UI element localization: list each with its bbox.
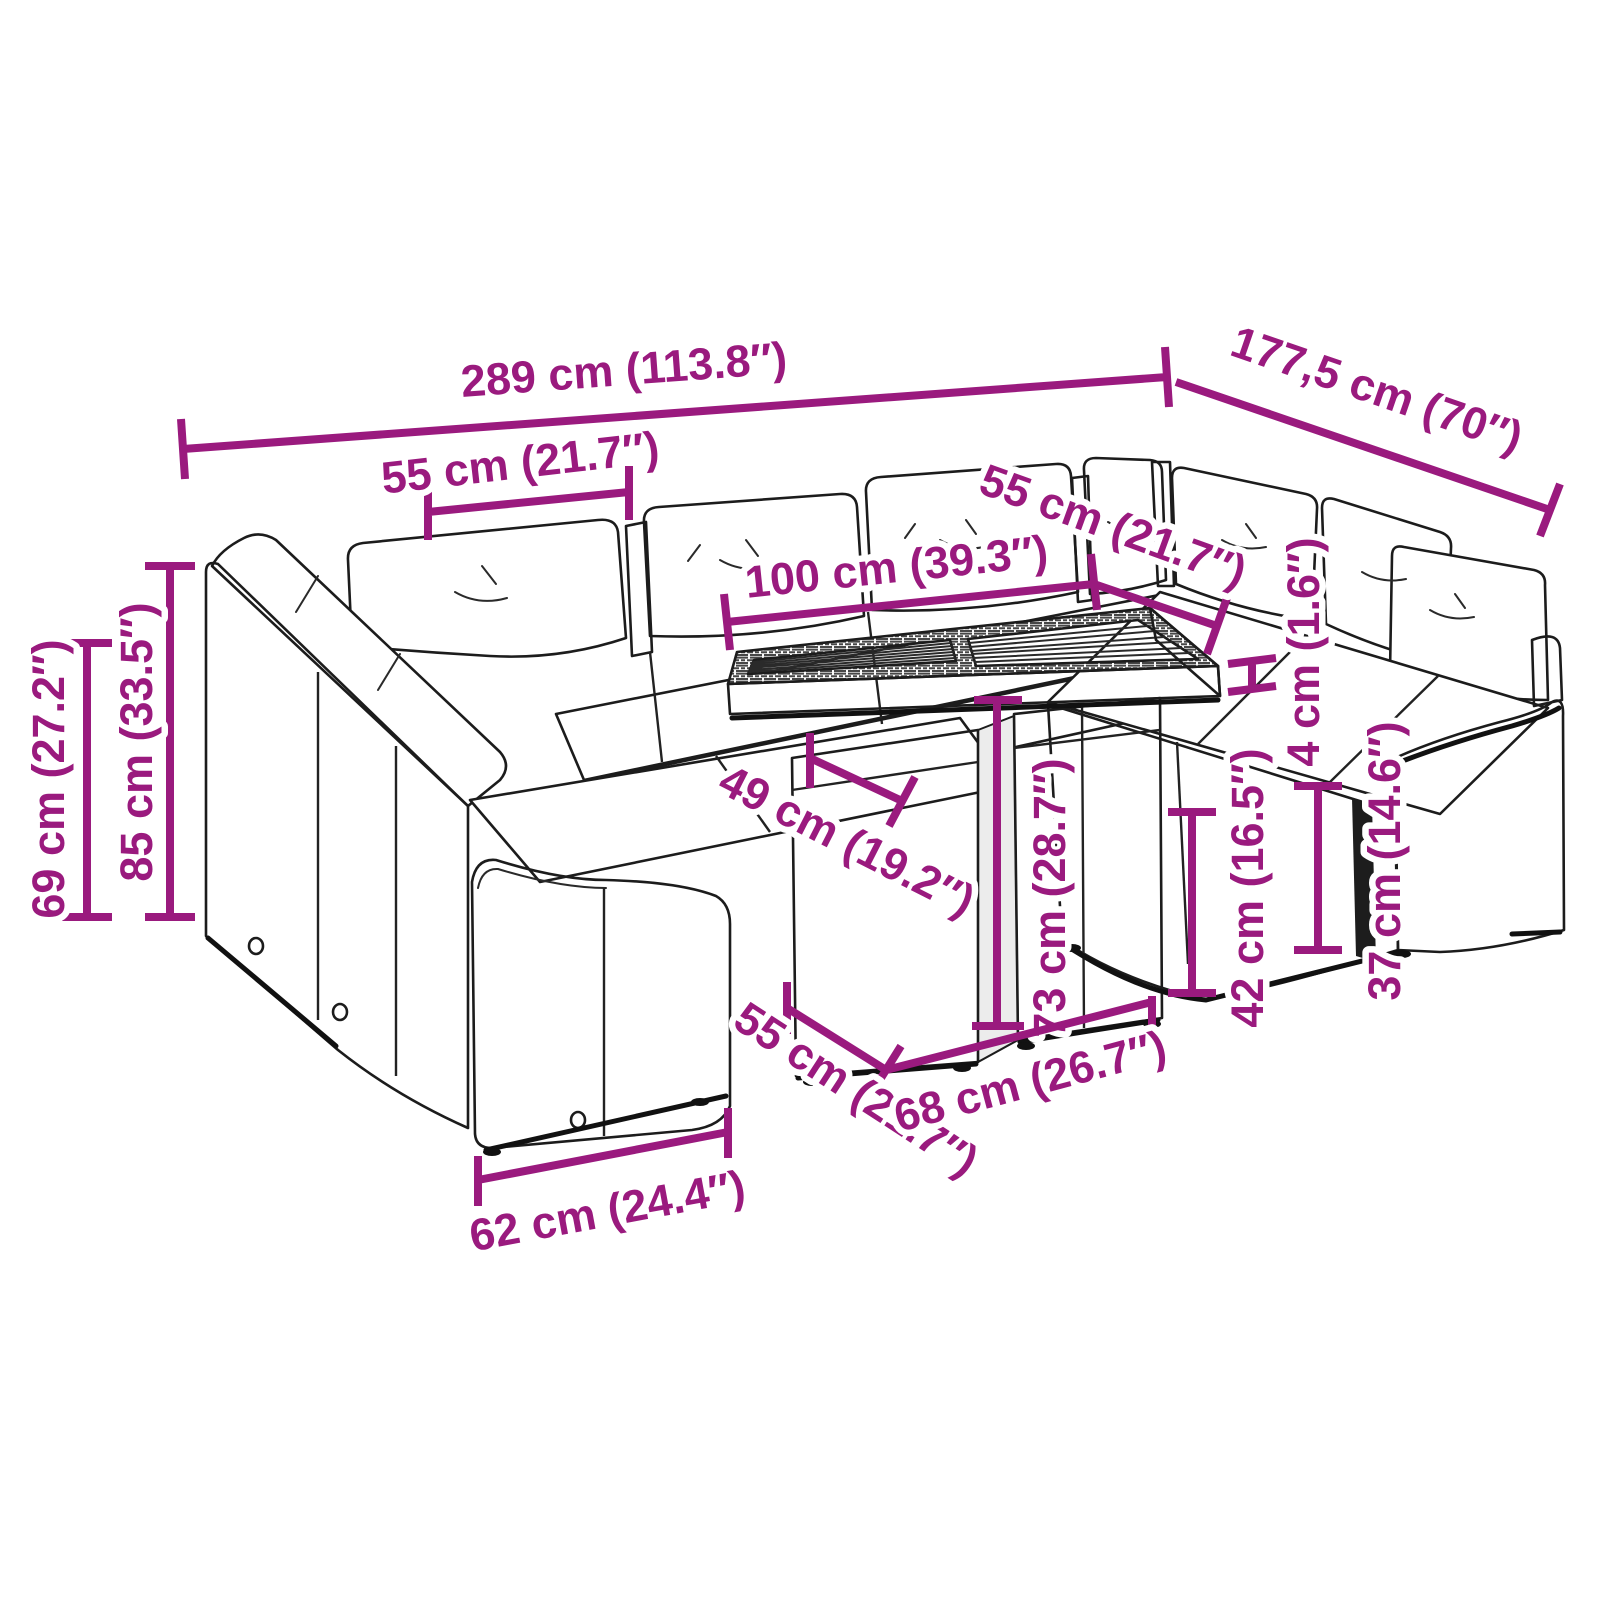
dim-overall-width-label: 289 cm (113.8″) <box>459 332 789 407</box>
dim-table-height-label: 73 cm (28.7″) <box>1024 758 1075 1037</box>
dimension-annotations: 289 cm (113.8″) 177,5 cm (70″) 55 cm (21… <box>23 316 1560 1262</box>
dim-arm-module-width: 62 cm (24.4″) <box>465 1108 749 1261</box>
dim-cushion-gap-label: 4 cm (1.6″) <box>1278 537 1329 766</box>
dim-seat-height-label: 37 cm (14.6″) <box>1359 721 1410 1000</box>
dim-back-height: 69 cm (27.2″) <box>23 639 112 918</box>
dim-overall-width: 289 cm (113.8″) <box>181 332 1169 479</box>
product-dimension-diagram: 289 cm (113.8″) 177,5 cm (70″) 55 cm (21… <box>0 0 1600 1600</box>
dim-total-height-label: 85 cm (33.5″) <box>111 602 162 881</box>
dim-back-height-label: 69 cm (27.2″) <box>23 639 74 918</box>
dim-total-height: 85 cm (33.5″) <box>111 566 195 917</box>
dim-overall-depth-label: 177,5 cm (70″) <box>1225 316 1529 463</box>
diagram-canvas: 289 cm (113.8″) 177,5 cm (70″) 55 cm (21… <box>0 0 1600 1600</box>
dim-seat-height-cushion-label: 42 cm (16.5″) <box>1222 748 1273 1027</box>
dim-back-module-width: 55 cm (21.7″) <box>379 421 662 540</box>
